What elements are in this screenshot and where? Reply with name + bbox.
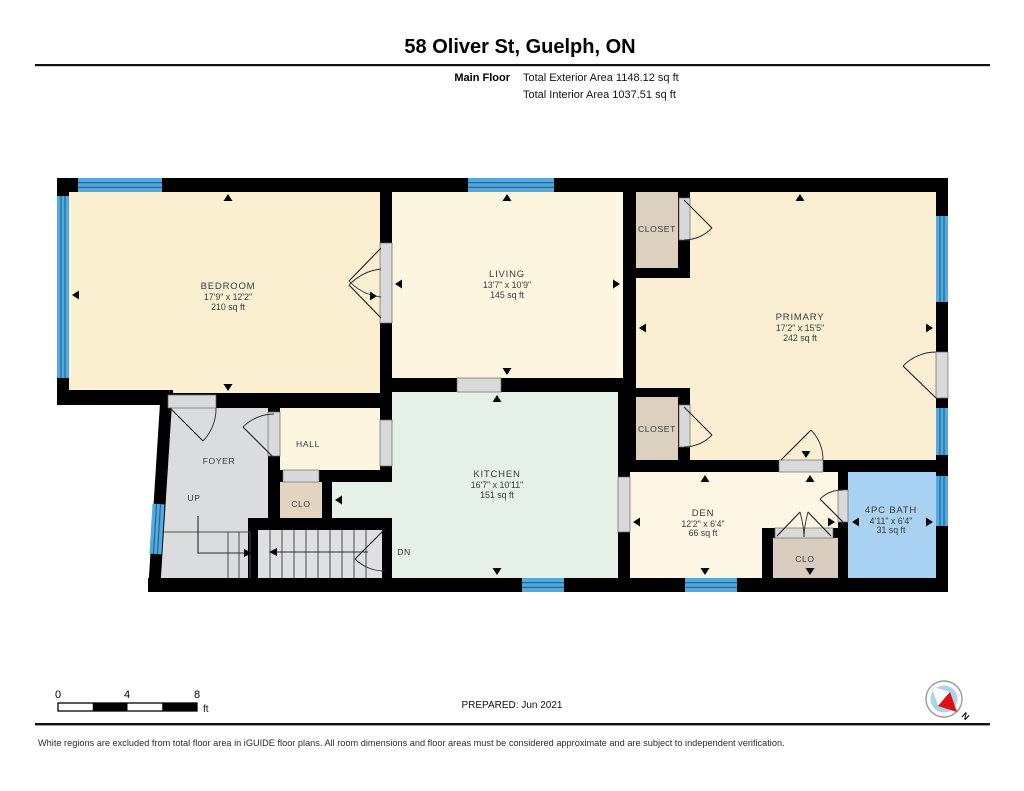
door-opening-entry — [168, 395, 216, 408]
label-closet-bottom: CLOSET — [638, 424, 676, 434]
door-opening-den-bath — [838, 490, 848, 522]
label-clo-hall: CLO — [291, 499, 310, 509]
opening-living-kitchen — [457, 378, 501, 392]
window-bedroom-top — [78, 178, 162, 192]
window-primary-right-lower — [936, 408, 948, 455]
page-title: 58 Oliver St, Guelph, ON — [404, 36, 635, 58]
floor-plan-canvas: 58 Oliver St, Guelph, ON Main Floor Tota… — [0, 0, 1024, 791]
label-kitchen-area: 151 sq ft — [480, 490, 514, 500]
window-primary-right-upper — [936, 216, 948, 302]
header-divider — [35, 64, 990, 66]
door-opening-foyer-hall — [268, 412, 280, 456]
window-den-bottom — [685, 578, 737, 592]
label-primary: PRIMARY — [776, 312, 825, 323]
label-bedroom-dims: 17'9" x 12'2" — [204, 292, 252, 302]
floor-plan-page: 58 Oliver St, Guelph, ON Main Floor Tota… — [0, 0, 1024, 791]
window-kitchen-bottom — [522, 578, 564, 592]
label-bath: 4PC BATH — [865, 505, 917, 516]
scale-unit: ft — [203, 704, 209, 715]
label-up: UP — [187, 493, 200, 503]
label-kitchen: KITCHEN — [473, 469, 520, 480]
label-primary-area: 242 sq ft — [783, 333, 817, 343]
label-living: LIVING — [489, 269, 525, 280]
window-bedroom-left — [57, 196, 69, 378]
opening-kitchen-den — [618, 477, 630, 532]
window-bath-right — [936, 476, 948, 526]
scale-bar-segment — [162, 703, 197, 711]
compass-north-label: N — [960, 710, 972, 722]
label-bedroom-area: 210 sq ft — [211, 302, 245, 312]
label-living-dims: 13'7" x 10'9" — [483, 280, 531, 290]
footer-divider — [35, 723, 990, 725]
wall-stairs-right — [382, 518, 392, 578]
door-opening-den-primary — [779, 460, 823, 472]
label-foyer: FOYER — [203, 456, 236, 466]
opening-hall-kitchen — [380, 420, 392, 466]
scale-bar: 0 4 8 ft — [55, 689, 209, 715]
label-den-area: 66 sq ft — [689, 528, 718, 538]
floor-label: Main Floor — [454, 72, 510, 84]
label-clo-den: CLO — [795, 554, 814, 564]
label-bath-area: 31 sq ft — [877, 525, 906, 535]
label-hall: HALL — [296, 439, 320, 449]
scale-tick-4: 4 — [124, 689, 130, 701]
total-interior-area: Total Interior Area 1037.51 sq ft — [523, 89, 676, 101]
scale-tick-8: 8 — [194, 689, 200, 701]
door-opening-bedroom-living — [380, 243, 392, 323]
door-opening-primary-right — [936, 352, 948, 398]
wall-den-clo-left — [762, 528, 773, 578]
wall-den-bath — [838, 472, 848, 578]
disclaimer-text: White regions are excluded from total fl… — [38, 738, 785, 748]
opening-hall-clo — [283, 470, 319, 482]
window-living-top — [468, 178, 554, 192]
header: 58 Oliver St, Guelph, ON Main Floor Tota… — [35, 36, 990, 101]
compass-icon: N — [926, 681, 971, 722]
label-dn: DN — [397, 547, 411, 557]
label-den: DEN — [692, 508, 714, 519]
label-primary-dims: 17'2" x 15'5" — [776, 323, 824, 333]
label-kitchen-dims: 16'7" x 10'11" — [471, 480, 524, 490]
total-exterior-area: Total Exterior Area 1148.12 sq ft — [523, 72, 679, 84]
room-hall-floor — [280, 405, 380, 470]
scale-tick-0: 0 — [55, 689, 61, 701]
label-bedroom: BEDROOM — [201, 281, 256, 292]
wall-living-kitchen — [392, 378, 636, 392]
wall-stairs-top — [248, 518, 392, 530]
wall-clo-right — [322, 470, 332, 518]
wall-bedroom-bottom-exterior — [57, 390, 173, 405]
label-closet-top: CLOSET — [638, 224, 676, 234]
label-living-area: 145 sq ft — [490, 290, 524, 300]
scale-bar-segment — [93, 703, 128, 711]
prepared-date: PREPARED: Jun 2021 — [462, 700, 563, 711]
